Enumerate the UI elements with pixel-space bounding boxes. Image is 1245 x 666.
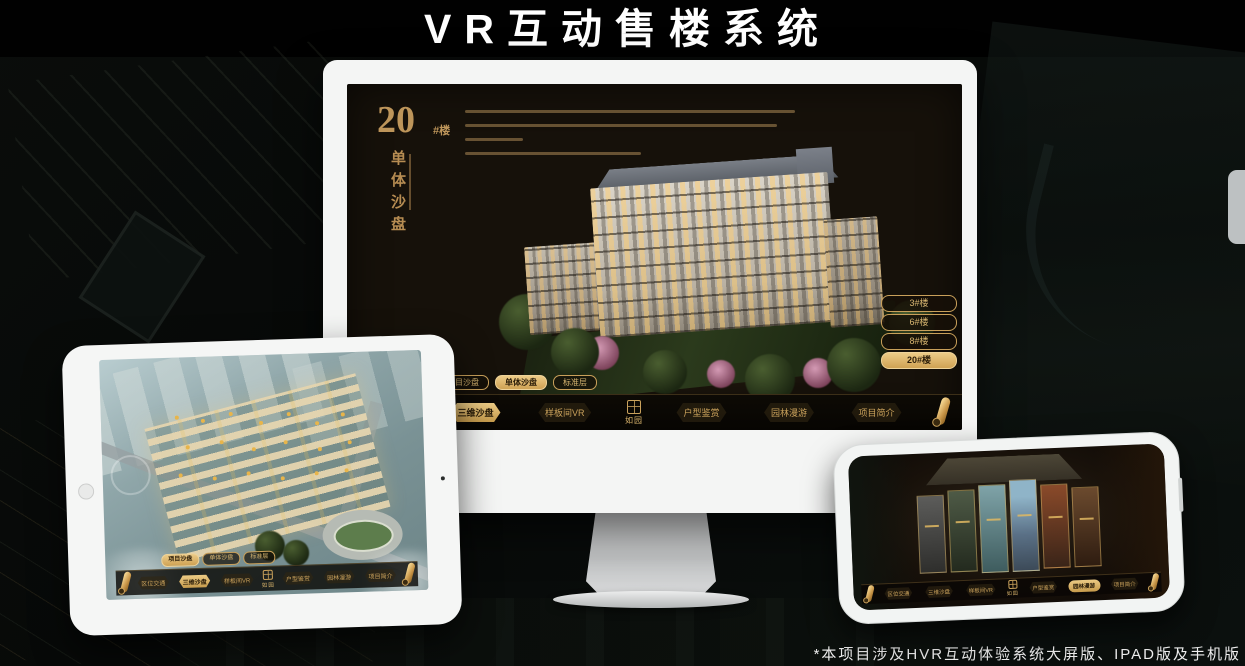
gallery-panel[interactable] [1071, 486, 1101, 567]
phone-device: 区位交通 三维沙盘 样板间VR 如园 户型鉴赏 园林漫游 项目简介 [832, 431, 1185, 625]
nav-item-project-intro[interactable]: 项目简介 [1108, 577, 1140, 590]
description-text-line [465, 110, 795, 113]
nav-item-garden-roam[interactable]: 园林漫游 [321, 570, 357, 584]
tab-standard-floor[interactable]: 标准层 [553, 375, 597, 390]
gallery-panel[interactable] [1040, 484, 1070, 569]
scroll-handle-icon[interactable] [863, 584, 876, 605]
nav-item-floorplan[interactable]: 户型鉴赏 [1027, 580, 1059, 593]
monitor-subtab-row: 项目沙盘 单体沙盘 标准层 [437, 375, 597, 390]
poster-canvas: VR互动售楼系统 20 #楼 单体沙盘 [0, 0, 1245, 666]
seal-icon [627, 400, 641, 414]
gallery-panel[interactable] [917, 495, 947, 574]
tablet-home-button[interactable] [78, 483, 94, 499]
scroll-cap [863, 597, 870, 604]
flower-tree [707, 360, 735, 388]
subtitle-english-decoration [409, 154, 411, 210]
floor-button-8[interactable]: 8#楼 [881, 333, 957, 350]
brand-logo: 如园 [625, 400, 643, 426]
panel-caption [1048, 516, 1062, 519]
tree [283, 540, 310, 567]
nav-item-garden-roam[interactable]: 园林漫游 [760, 403, 818, 422]
panel-caption [955, 521, 969, 524]
panel-caption [986, 518, 1000, 521]
panel-caption [924, 525, 938, 528]
tab-project-sandbox[interactable]: 项目沙盘 [161, 553, 199, 567]
phone-side-button[interactable] [1178, 478, 1183, 512]
monitor-stand-base [553, 591, 749, 608]
gallery-panel[interactable] [947, 489, 977, 572]
panel-caption [1017, 514, 1031, 517]
scroll-cap [1147, 585, 1154, 592]
tab-standard-floor[interactable]: 标准层 [243, 551, 275, 565]
nav-item-3d-sandbox[interactable]: 三维沙盘 [176, 574, 212, 588]
nav-item-garden-roam[interactable]: 园林漫游 [1068, 579, 1100, 592]
nav-item-project-intro[interactable]: 项目简介 [362, 568, 398, 582]
brand-logo: 如园 [1006, 580, 1019, 597]
brand-logo: 如园 [261, 569, 275, 588]
building-right-wing [823, 216, 884, 328]
watermark-ring [110, 455, 151, 496]
scroll-cap [401, 578, 410, 587]
tab-single-sandbox[interactable]: 单体沙盘 [202, 552, 240, 566]
cropped-device-edge [1228, 170, 1245, 244]
scroll-handle-icon[interactable] [401, 562, 417, 588]
nav-item-floorplan[interactable]: 户型鉴赏 [672, 403, 730, 422]
tab-single-sandbox[interactable]: 单体沙盘 [495, 375, 547, 390]
scroll-handle-icon[interactable] [1147, 572, 1160, 593]
footnote-text: *本项目涉及HVR互动体验系统大屏版、IPAD版及手机版 [814, 643, 1241, 664]
floor-button-3[interactable]: 3#楼 [881, 295, 957, 312]
panel-caption [1079, 517, 1093, 520]
tablet-subtab-row: 项目沙盘 单体沙盘 标准层 [161, 551, 275, 568]
section-subtitle-vertical: 单体沙盘 [387, 150, 408, 238]
nav-item-project-intro[interactable]: 项目简介 [847, 403, 905, 422]
nav-item-3d-sandbox[interactable]: 三维沙盘 [923, 585, 955, 598]
scroll-cap [117, 587, 126, 596]
seal-icon [263, 569, 273, 579]
gallery-panel[interactable] [978, 484, 1009, 573]
building-number-heading: 20 [377, 98, 415, 142]
nav-item-showroom-vr[interactable]: 样板间VR [218, 573, 257, 587]
floor-button-6[interactable]: 6#楼 [881, 314, 957, 331]
page-title: VR互动售楼系统 [0, 0, 1245, 56]
description-text-line [465, 124, 777, 127]
nav-item-showroom-vr[interactable]: 样板间VR [964, 583, 999, 596]
tree [827, 338, 881, 392]
nav-item-showroom-vr[interactable]: 样板间VR [534, 403, 596, 422]
building-main-block [590, 172, 838, 338]
tablet-screen: 项目沙盘 单体沙盘 标准层 区位交通 三维沙盘 样板间VR 如园 户型鉴赏 园林… [99, 350, 428, 600]
floor-button-20[interactable]: 20#楼 [881, 352, 957, 369]
tree [551, 328, 599, 376]
stadium-field [333, 519, 394, 553]
tree [643, 350, 687, 394]
phone-screen: 区位交通 三维沙盘 样板间VR 如园 户型鉴赏 园林漫游 项目简介 [848, 443, 1170, 610]
description-text-line [465, 138, 523, 141]
building-number-suffix: #楼 [433, 122, 450, 138]
gallery-panel[interactable] [1009, 479, 1040, 572]
scroll-handle-icon[interactable] [931, 395, 954, 430]
tablet-device: 项目沙盘 单体沙盘 标准层 区位交通 三维沙盘 样板间VR 如园 户型鉴赏 园林… [62, 334, 463, 636]
nav-item-floorplan[interactable]: 户型鉴赏 [280, 571, 316, 585]
nav-item-location-traffic[interactable]: 区位交通 [135, 575, 171, 589]
nav-item-location-traffic[interactable]: 区位交通 [882, 587, 914, 600]
monitor-stand-neck [586, 506, 716, 600]
building-3d-render [497, 148, 937, 408]
seal-icon [1008, 580, 1017, 589]
tablet-camera-icon [441, 476, 445, 480]
scroll-handle-icon[interactable] [117, 570, 133, 596]
interior-ceiling-beam [910, 452, 1097, 486]
